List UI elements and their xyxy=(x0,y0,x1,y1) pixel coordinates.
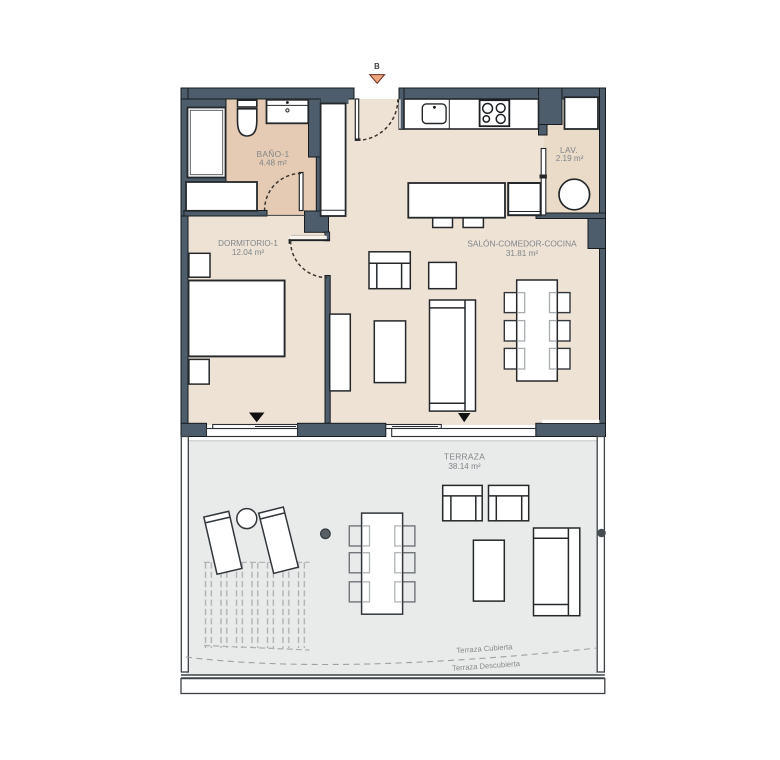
svg-text:4.48 m²: 4.48 m² xyxy=(259,159,287,168)
svg-text:TERRAZA: TERRAZA xyxy=(444,452,485,462)
svg-text:BAÑO-1: BAÑO-1 xyxy=(257,149,290,159)
svg-text:38.14 m²: 38.14 m² xyxy=(448,462,481,471)
svg-text:B: B xyxy=(374,62,380,71)
svg-text:31.81 m²: 31.81 m² xyxy=(506,249,539,258)
svg-text:2.19 m²: 2.19 m² xyxy=(556,154,584,163)
svg-text:SALÓN-COMEDOR-COCINA: SALÓN-COMEDOR-COCINA xyxy=(467,238,577,248)
svg-text:12.04 m²: 12.04 m² xyxy=(232,248,265,257)
